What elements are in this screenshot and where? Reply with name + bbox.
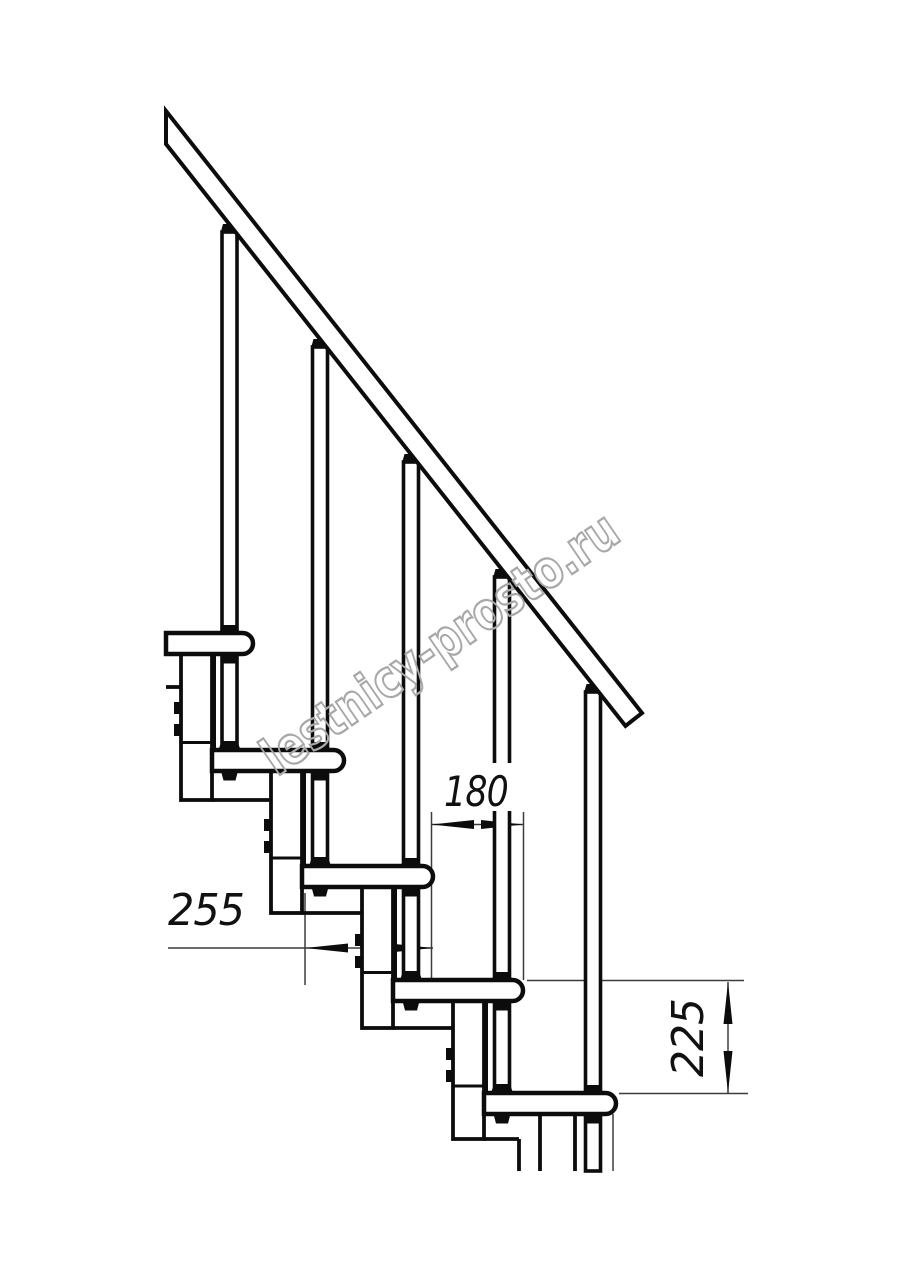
nut bbox=[221, 654, 238, 664]
nut bbox=[494, 1114, 511, 1124]
stair-drawing-svg: 180 255 225 lestnicy-prosto.ru bbox=[0, 0, 914, 1280]
nut bbox=[221, 771, 238, 781]
nut bbox=[585, 1114, 602, 1124]
balusters bbox=[222, 232, 601, 1171]
baluster-3 bbox=[404, 462, 419, 974]
collar bbox=[492, 972, 512, 980]
baluster-1 bbox=[222, 232, 237, 744]
module-bolt-tab bbox=[355, 956, 363, 968]
collar bbox=[583, 1085, 603, 1093]
nut bbox=[494, 1001, 511, 1011]
tread-1 bbox=[166, 633, 253, 654]
arrow-run-left bbox=[432, 820, 475, 829]
tread-4 bbox=[393, 980, 523, 1001]
baluster-foot bbox=[219, 741, 241, 750]
module-bolt-tab bbox=[446, 1070, 454, 1082]
module-bolt-tab bbox=[446, 1048, 454, 1060]
module-bolt-tab bbox=[174, 702, 182, 714]
baluster-foot bbox=[309, 857, 331, 866]
baluster-2 bbox=[313, 347, 328, 860]
nut bbox=[312, 887, 329, 897]
dimension-depth-label: 255 bbox=[168, 885, 244, 936]
module-bolt-tab bbox=[264, 819, 272, 831]
tread-3 bbox=[302, 866, 433, 887]
collar bbox=[220, 625, 240, 633]
stringer-module-1 bbox=[166, 654, 271, 800]
nut bbox=[312, 771, 329, 781]
arrow-rise-top bbox=[724, 982, 733, 1024]
nut bbox=[403, 1001, 420, 1011]
collar bbox=[401, 858, 421, 866]
baluster-4 bbox=[495, 577, 510, 1088]
staircase-technical-drawing: 180 255 225 lestnicy-prosto.ru bbox=[0, 0, 914, 1280]
baluster-foot bbox=[400, 971, 422, 980]
module-bolt-tab bbox=[264, 841, 272, 853]
arrow-depth-left bbox=[305, 944, 348, 953]
baluster-foot bbox=[491, 1084, 513, 1093]
tread-5 bbox=[484, 1093, 616, 1114]
dimension-run-label: 180 bbox=[444, 767, 508, 816]
nut bbox=[403, 887, 420, 897]
module-bolt-tab bbox=[174, 724, 182, 736]
dimension-rise-label: 225 bbox=[663, 999, 714, 1077]
module-bolt-tab bbox=[355, 934, 363, 946]
arrow-rise-bottom bbox=[724, 1051, 733, 1093]
